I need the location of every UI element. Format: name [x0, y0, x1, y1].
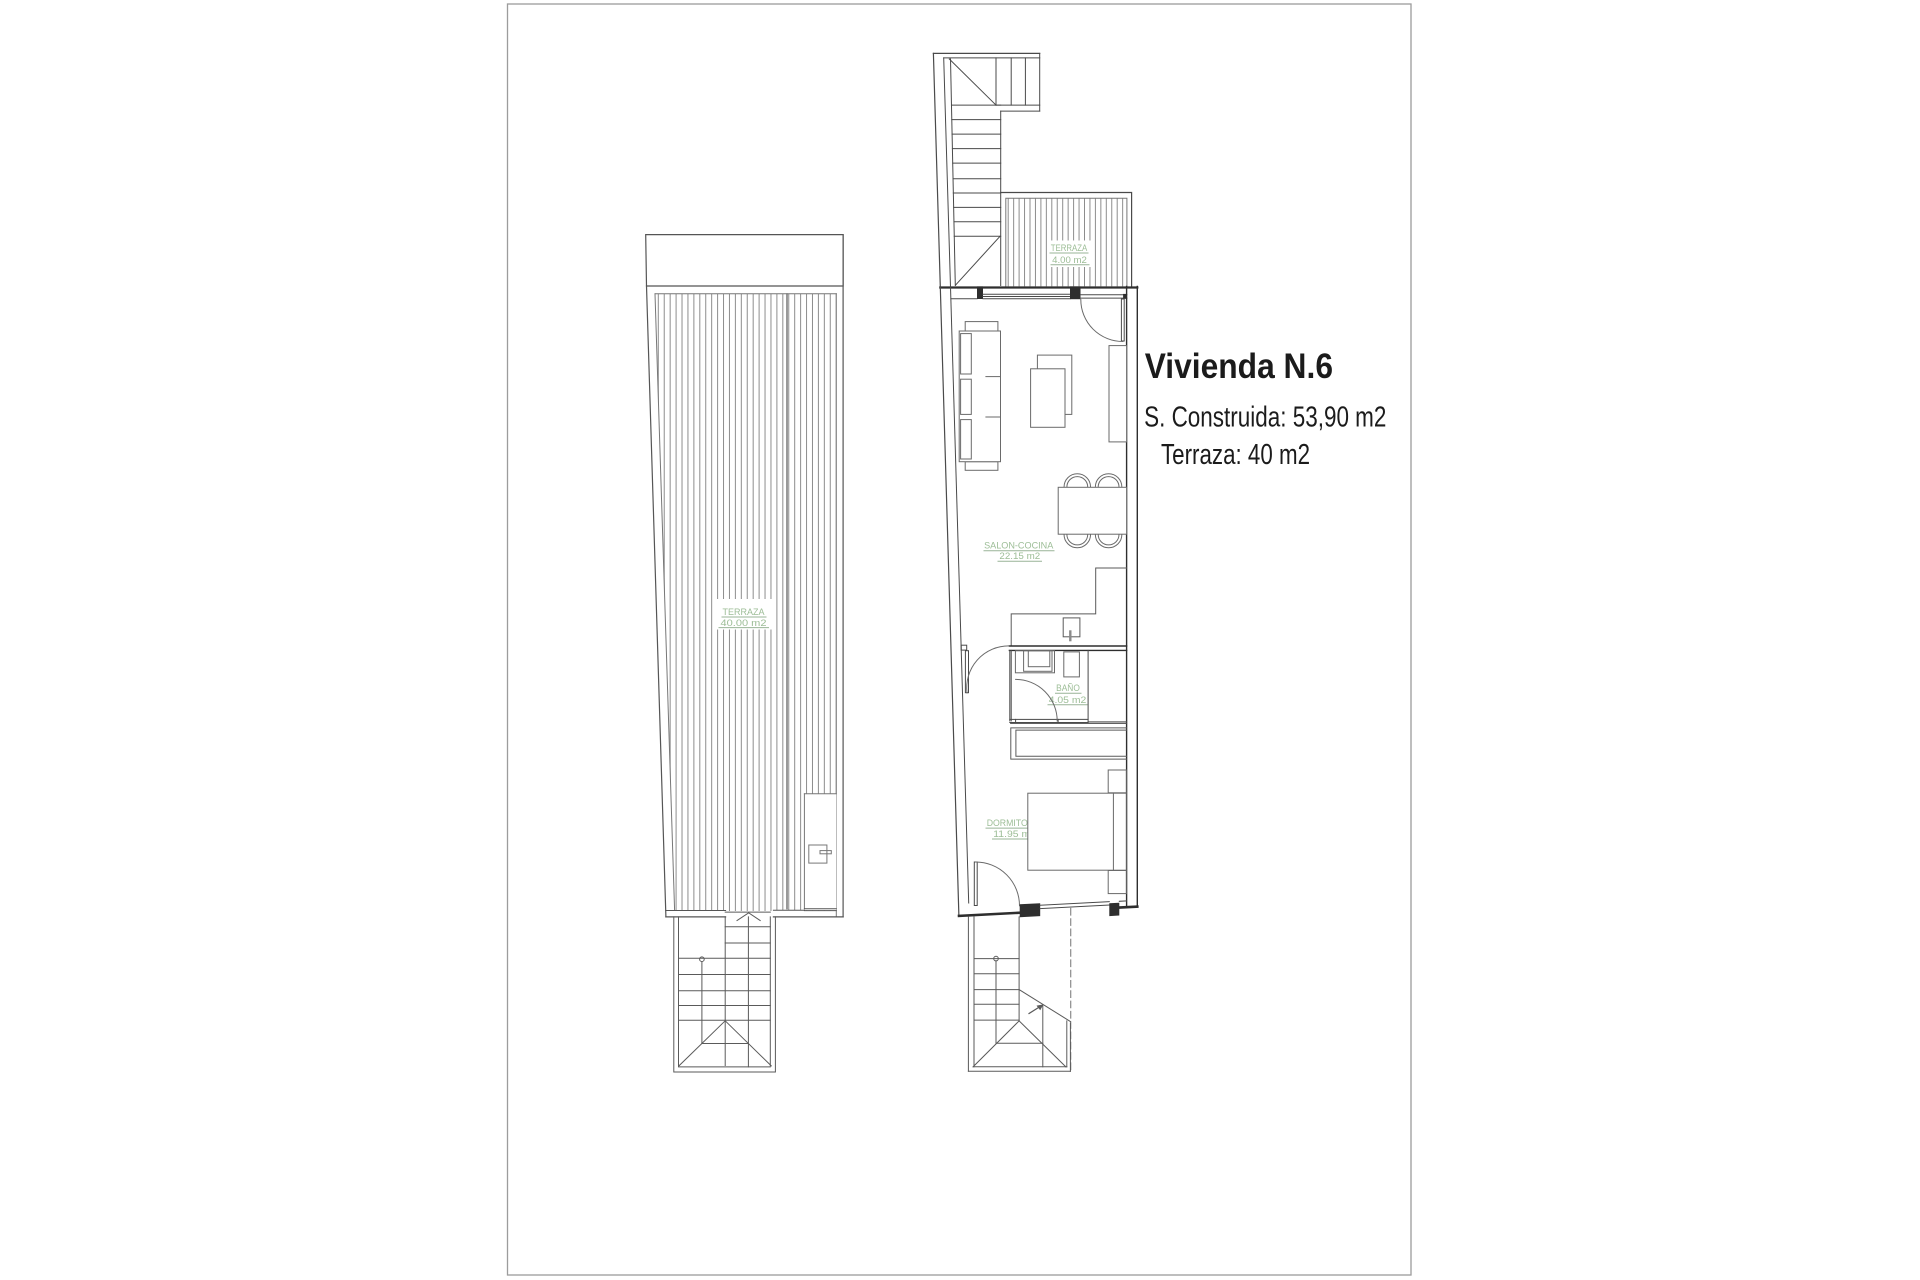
svg-text:S. Construida: 53,90 m2: S. Construida: 53,90 m2 [1144, 402, 1386, 434]
svg-text:BAÑO: BAÑO [1056, 683, 1080, 693]
svg-text:4.00 m2: 4.00 m2 [1052, 255, 1087, 265]
svg-text:SALON-COCINA: SALON-COCINA [984, 541, 1053, 551]
svg-text:TERRAZA: TERRAZA [1051, 243, 1088, 253]
svg-text:Terraza: 40 m2: Terraza: 40 m2 [1161, 439, 1310, 471]
svg-text:22.15 m2: 22.15 m2 [999, 551, 1040, 561]
svg-text:4.05 m2: 4.05 m2 [1049, 695, 1087, 705]
svg-text:Vivienda N.6: Vivienda N.6 [1145, 347, 1333, 386]
svg-text:40.00 m2: 40.00 m2 [721, 618, 767, 628]
svg-text:TERRAZA: TERRAZA [723, 607, 765, 617]
